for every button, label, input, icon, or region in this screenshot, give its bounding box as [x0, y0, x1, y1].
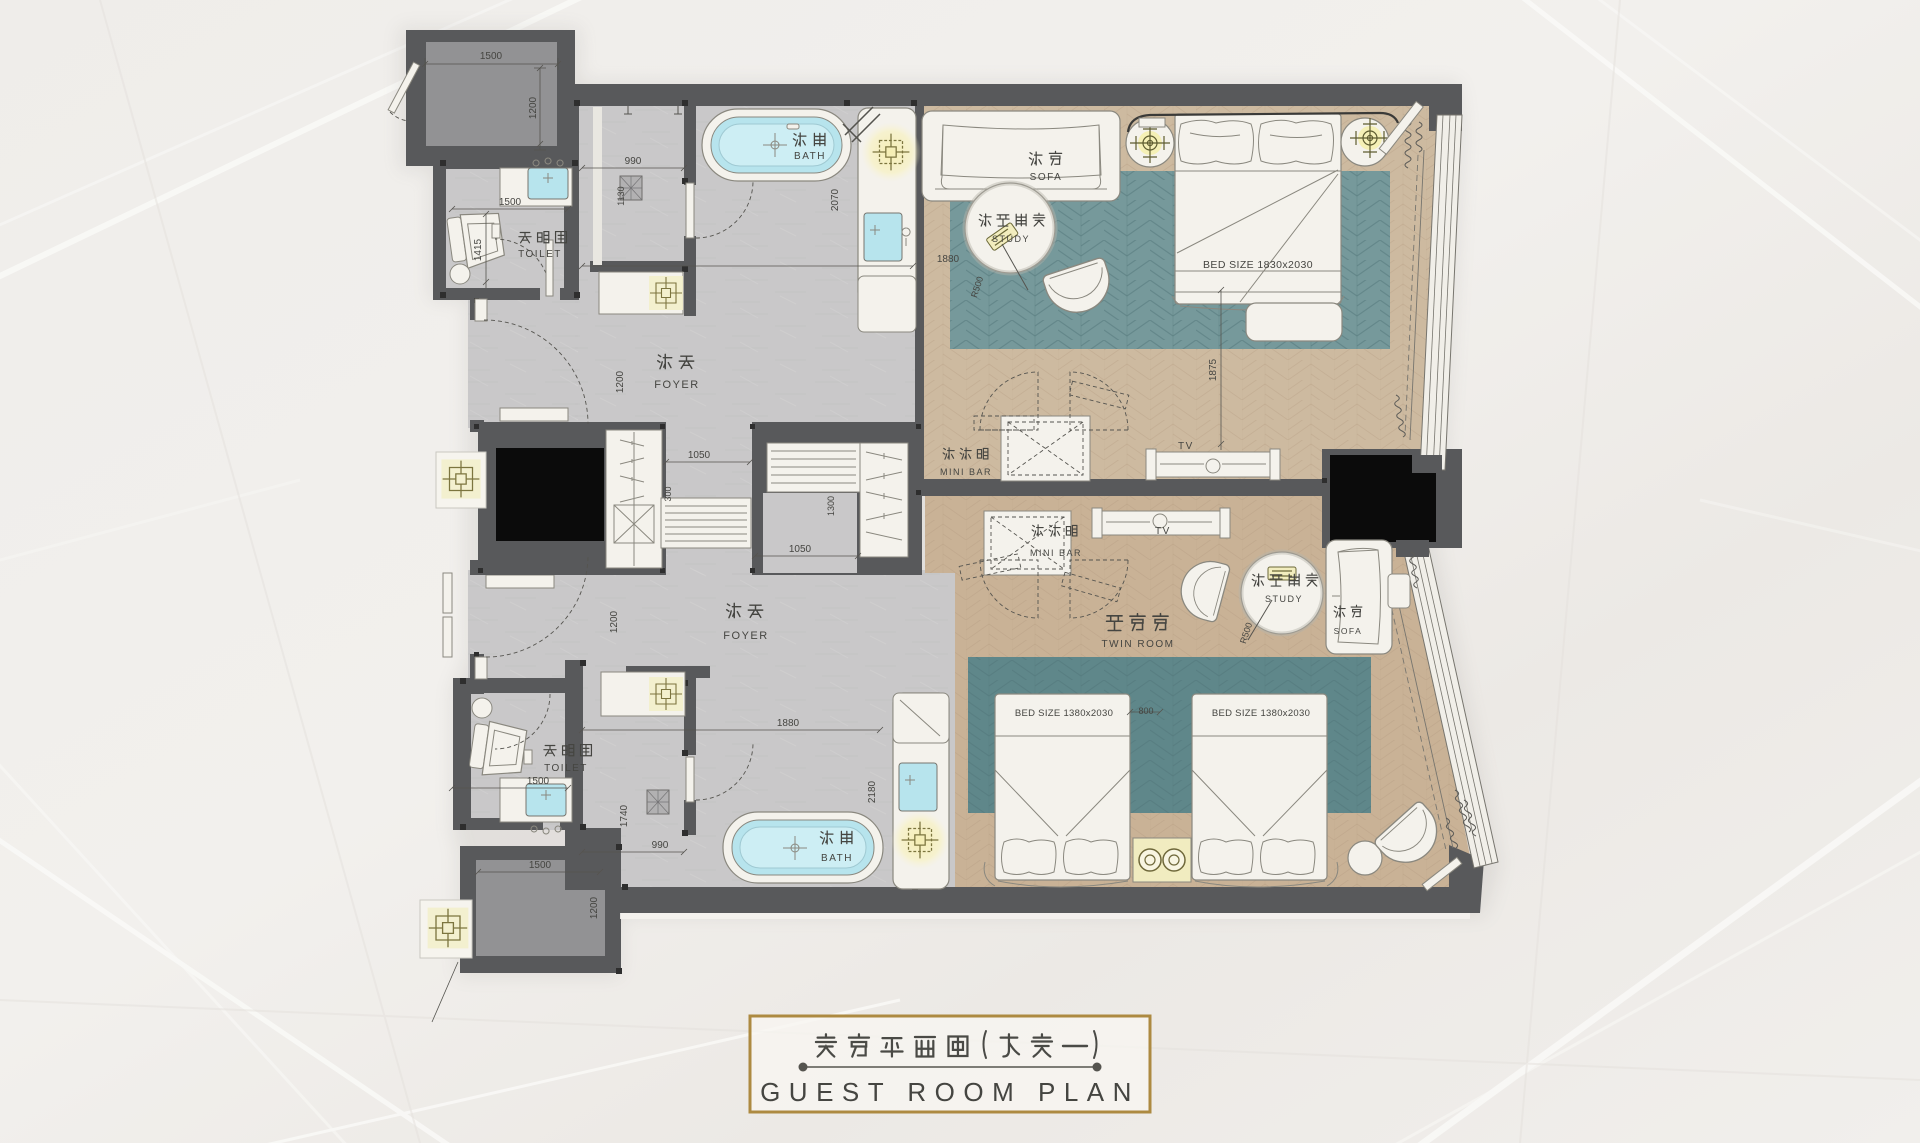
svg-text:BATH: BATH — [821, 853, 853, 864]
svg-text:1880: 1880 — [777, 718, 800, 729]
svg-text:GUEST ROOM PLAN: GUEST ROOM PLAN — [760, 1077, 1140, 1107]
svg-text:1050: 1050 — [688, 450, 711, 461]
svg-text:FOYER: FOYER — [654, 379, 699, 391]
svg-text:BATH: BATH — [794, 151, 826, 162]
svg-text:BED SIZE 1380x2030: BED SIZE 1380x2030 — [1212, 708, 1310, 719]
svg-text:SOFA: SOFA — [1334, 626, 1363, 636]
svg-text:1500: 1500 — [527, 776, 550, 787]
svg-text:1740: 1740 — [619, 804, 630, 827]
svg-text:SOFA: SOFA — [1030, 172, 1063, 183]
svg-text:1200: 1200 — [528, 96, 539, 119]
svg-text:800: 800 — [1138, 706, 1153, 716]
svg-text:2070: 2070 — [830, 188, 841, 211]
svg-text:1050: 1050 — [789, 544, 812, 555]
svg-text:1300: 1300 — [826, 496, 836, 516]
svg-text:1880: 1880 — [937, 254, 960, 265]
svg-text:1415: 1415 — [473, 238, 484, 261]
svg-text:BED SIZE 1380x2030: BED SIZE 1380x2030 — [1015, 708, 1113, 719]
svg-text:990: 990 — [625, 156, 642, 167]
svg-text:990: 990 — [652, 840, 669, 851]
svg-text:TV: TV — [1155, 526, 1171, 537]
svg-text:TV: TV — [1178, 441, 1194, 452]
svg-text:1500: 1500 — [529, 860, 552, 871]
svg-text:TOILET: TOILET — [518, 249, 562, 260]
svg-text:STUDY: STUDY — [1265, 594, 1303, 604]
svg-text:1200: 1200 — [615, 370, 626, 393]
svg-text:1200: 1200 — [609, 610, 620, 633]
svg-text:1130: 1130 — [616, 186, 626, 205]
svg-text:1500: 1500 — [480, 51, 503, 62]
svg-text:FOYER: FOYER — [723, 630, 768, 642]
svg-text:TOILET: TOILET — [544, 763, 588, 774]
svg-text:MINI BAR: MINI BAR — [1030, 548, 1082, 558]
svg-text:300: 300 — [663, 486, 673, 501]
svg-text:1500: 1500 — [499, 197, 522, 208]
svg-text:STUDY: STUDY — [992, 234, 1030, 244]
svg-text:TWIN ROOM: TWIN ROOM — [1102, 639, 1175, 650]
svg-text:2180: 2180 — [867, 780, 878, 803]
svg-text:1875: 1875 — [1208, 358, 1219, 381]
svg-text:MINI BAR: MINI BAR — [940, 467, 992, 477]
svg-text:BED SIZE 1830x2030: BED SIZE 1830x2030 — [1203, 259, 1313, 271]
svg-text:1200: 1200 — [589, 896, 600, 919]
